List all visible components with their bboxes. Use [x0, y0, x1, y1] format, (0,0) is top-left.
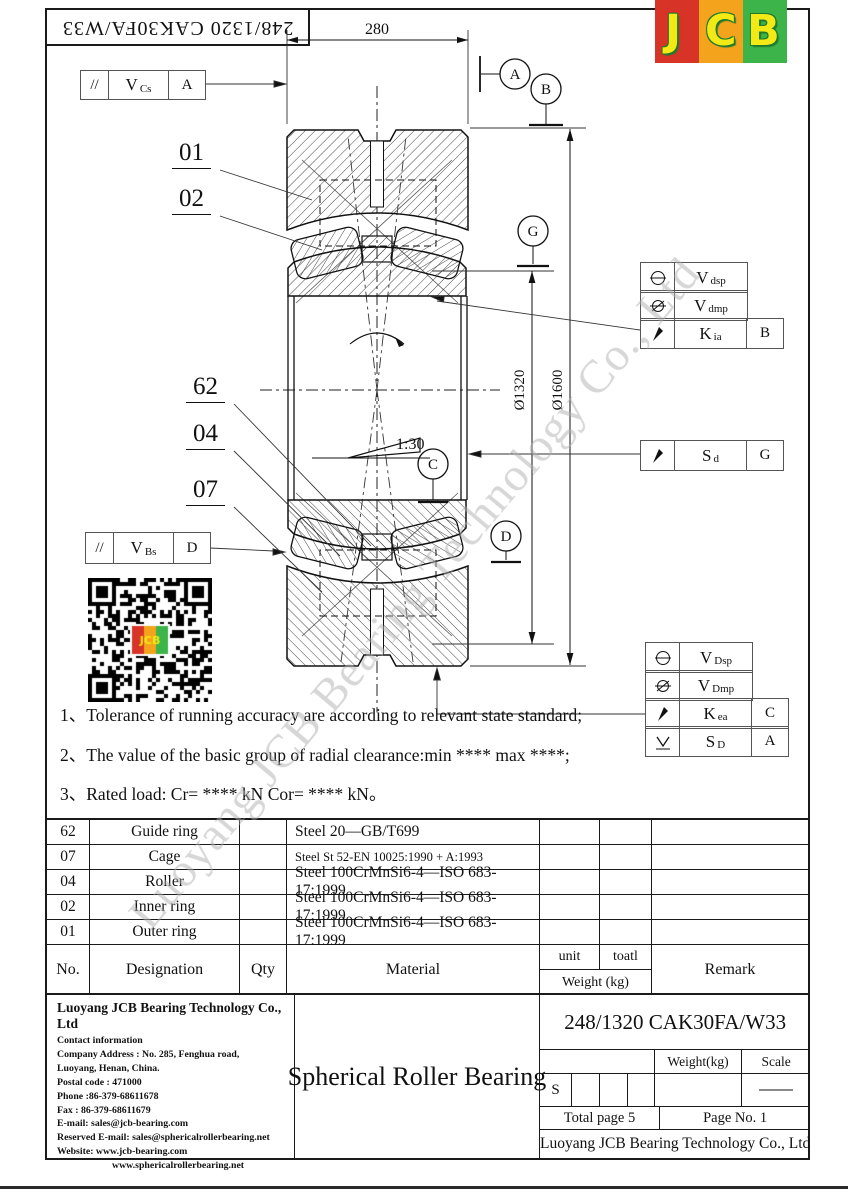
- company-info-cell: Luoyang JCB Bearing Technology Co., Ltd …: [47, 995, 295, 1158]
- part-designation: Guide ring: [90, 820, 240, 844]
- scale-dash: [759, 1089, 793, 1091]
- sD-label: SD: [680, 727, 752, 756]
- engineering-drawing-sheet: { "header": { "part_number_top": "248/13…: [0, 0, 848, 1200]
- vbs-label: VBs: [114, 533, 174, 563]
- sD-datum: A: [752, 727, 788, 756]
- part-total-weight: [600, 870, 652, 894]
- top-part-number: 248/1320 CAK30FA/W33: [62, 16, 293, 39]
- balloon-inner-ring: 02: [172, 186, 211, 215]
- vee-line-icon: [646, 727, 680, 756]
- header-no: No.: [47, 945, 90, 995]
- weight-scale-value-row: S: [540, 1074, 810, 1107]
- header-qty: Qty: [240, 945, 287, 995]
- vDmp-label: VDmp: [680, 671, 752, 700]
- part-no: 02: [47, 895, 90, 919]
- part-no: 07: [47, 845, 90, 869]
- company-name: Luoyang JCB Bearing Technology Co., Ltd: [57, 1000, 286, 1032]
- parts-table: 62 Guide ring Steel 20—GB/T699 07 Cage S…: [47, 818, 808, 995]
- footer-company: Luoyang JCB Bearing Technology Co., Ltd: [540, 1130, 810, 1158]
- kea-datum: C: [752, 699, 788, 728]
- page-info-row: Total page 5 Page No. 1: [540, 1107, 810, 1130]
- page-bottom-rule: [0, 1186, 848, 1189]
- part-designation: Cage: [90, 845, 240, 869]
- tolerance-frame-sD: SD A: [645, 726, 789, 757]
- logo-letter-j: J: [665, 6, 681, 56]
- table-row: 01 Outer ring Steel 100CrMnSi6-4—ISO 683…: [47, 920, 808, 945]
- weight-scale-header-row: Weight(kg) Scale: [540, 1050, 810, 1074]
- part-no: 01: [47, 920, 90, 944]
- part-qty: [240, 845, 287, 869]
- tolerance-frame-kea: Kea C: [645, 698, 789, 729]
- part-unit-weight: [540, 920, 600, 944]
- part-qty: [240, 870, 287, 894]
- contact-line: Website: www.jcb-bearing.com: [57, 1145, 286, 1159]
- empty-cell: [572, 1074, 600, 1106]
- part-unit-weight: [540, 820, 600, 844]
- runout-arrow-icon: [646, 699, 680, 728]
- part-designation: Inner ring: [90, 895, 240, 919]
- contact-line: Phone :86-379-68611678: [57, 1090, 286, 1104]
- logo-letter-c: C: [705, 6, 737, 56]
- circle-slash-icon: [641, 291, 675, 320]
- contact-line: Reserved E-mail: sales@sphericalrollerbe…: [57, 1131, 286, 1145]
- balloon-cage: 07: [186, 477, 225, 506]
- note-1: 1、Tolerance of running accuracy are acco…: [60, 702, 582, 727]
- notes-list: 1、Tolerance of running accuracy are acco…: [60, 702, 582, 821]
- product-name: Spherical Roller Bearing: [295, 995, 540, 1158]
- kia-datum: B: [747, 319, 783, 348]
- vcs-label: VCs: [109, 71, 169, 99]
- contact-line: Fax : 86-379-68611679: [57, 1104, 286, 1118]
- contact-line: Luoyang, Henan, China.: [57, 1062, 286, 1076]
- part-material: Steel 20—GB/T699: [287, 820, 540, 844]
- part-total-weight: [600, 895, 652, 919]
- scale-value-cell: [742, 1074, 810, 1106]
- contact-line: www.sphericalrollerbearing.net: [57, 1159, 286, 1173]
- part-no: 04: [47, 870, 90, 894]
- header-designation: Designation: [90, 945, 240, 995]
- contact-line: E-mail: sales@jcb-bearing.com: [57, 1117, 286, 1131]
- tolerance-frame-sd: Sd G: [640, 440, 784, 471]
- vdsp-label: Vdsp: [675, 263, 747, 292]
- circle-slash-icon: [646, 671, 680, 700]
- header-material: Material: [287, 945, 540, 995]
- parallel-slashes-icon: //: [86, 533, 114, 563]
- parallel-slashes-icon: //: [81, 71, 109, 99]
- part-unit-weight: [540, 870, 600, 894]
- vbs-datum: D: [174, 533, 210, 563]
- vdmp-label: Vdmp: [675, 291, 747, 320]
- title-block-right: 248/1320 CAK30FA/W33 Weight(kg) Scale S …: [540, 995, 810, 1158]
- header-unit: unit: [540, 945, 600, 969]
- part-unit-weight: [540, 895, 600, 919]
- table-row: 62 Guide ring Steel 20—GB/T699: [47, 820, 808, 845]
- circle-line-icon: [646, 643, 680, 672]
- top-part-number-box: 248/1320 CAK30FA/W33: [45, 8, 310, 46]
- tolerance-frame-vDsp: VDsp: [645, 642, 753, 673]
- weight-value-cell: [655, 1074, 742, 1106]
- part-total-weight: [600, 920, 652, 944]
- vcs-datum: A: [169, 71, 205, 99]
- part-material: Steel 100CrMnSi6-4—ISO 683-17:1999: [287, 920, 540, 944]
- empty-cell: [628, 1074, 655, 1106]
- balloon-roller: 04: [186, 421, 225, 450]
- part-remark: [652, 870, 808, 894]
- empty-cell: [600, 1074, 628, 1106]
- part-designation: Outer ring: [90, 920, 240, 944]
- part-qty: [240, 920, 287, 944]
- part-no: 62: [47, 820, 90, 844]
- tolerance-frame-vcs: // VCs A: [80, 70, 206, 100]
- balloon-outer-ring: 01: [172, 140, 211, 169]
- company-contact: Contact information Company Address : No…: [57, 1034, 286, 1173]
- sd-datum: G: [747, 441, 783, 470]
- table-header-row: No. Designation Qty Material unit toatl …: [47, 945, 808, 995]
- contact-line: Contact information: [57, 1034, 286, 1048]
- header-remark: Remark: [652, 945, 808, 995]
- part-remark: [652, 820, 808, 844]
- part-unit-weight: [540, 845, 600, 869]
- part-number: 248/1320 CAK30FA/W33: [540, 995, 810, 1050]
- scale-label: Scale: [742, 1050, 810, 1073]
- part-qty: [240, 820, 287, 844]
- tolerance-frame-vdsp: Vdsp: [640, 262, 748, 293]
- kia-label: Kia: [675, 319, 747, 348]
- header-total: toatl: [600, 945, 651, 969]
- tolerance-frame-vDmp: VDmp: [645, 670, 753, 701]
- part-designation: Roller: [90, 870, 240, 894]
- part-remark: [652, 895, 808, 919]
- logo-letter-b: B: [747, 6, 780, 56]
- kea-label: Kea: [680, 699, 752, 728]
- title-block: Luoyang JCB Bearing Technology Co., Ltd …: [47, 993, 808, 1158]
- part-qty: [240, 895, 287, 919]
- header-weight-group: unit toatl Weight (kg): [540, 945, 652, 995]
- contact-line: Company Address : No. 285, Fenghua road,: [57, 1048, 286, 1062]
- balloon-guide-ring: 62: [186, 374, 225, 403]
- contact-line: Postal code : 471000: [57, 1076, 286, 1090]
- tolerance-frame-vbs: // VBs D: [85, 532, 211, 564]
- page-no: Page No. 1: [660, 1107, 810, 1129]
- circle-line-icon: [641, 263, 675, 292]
- jcb-logo: J C B: [655, 0, 787, 63]
- part-total-weight: [600, 845, 652, 869]
- tolerance-frame-kia: Kia B: [640, 318, 784, 349]
- note-3: 3、Rated load: Cr= **** kN Cor= **** kN。: [60, 781, 582, 806]
- vDsp-label: VDsp: [680, 643, 752, 672]
- part-total-weight: [600, 820, 652, 844]
- header-weight-kg: Weight (kg): [540, 970, 651, 995]
- empty-cell: [540, 1050, 655, 1073]
- weight-label: Weight(kg): [655, 1050, 742, 1073]
- total-page: Total page 5: [540, 1107, 660, 1129]
- part-remark: [652, 920, 808, 944]
- sd-label: Sd: [675, 441, 747, 470]
- note-2: 2、The value of the basic group of radial…: [60, 742, 582, 767]
- runout-arrow-icon: [641, 319, 675, 348]
- qr-code: [88, 578, 212, 702]
- runout-arrow-icon: [641, 441, 675, 470]
- tolerance-frame-vdmp: Vdmp: [640, 290, 748, 321]
- part-remark: [652, 845, 808, 869]
- s-label: S: [540, 1074, 572, 1106]
